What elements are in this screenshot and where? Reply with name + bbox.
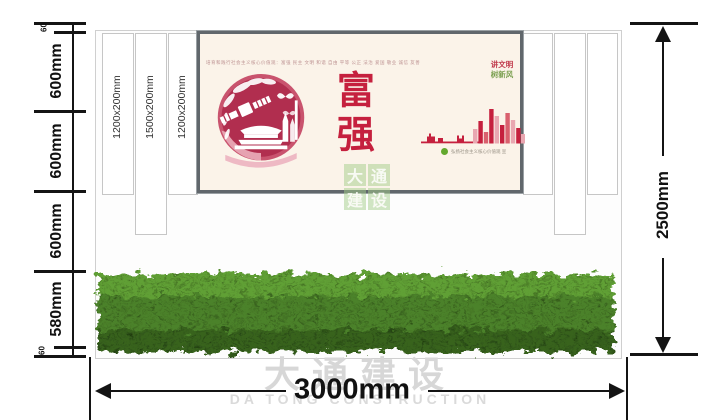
post-right-3 — [587, 33, 618, 195]
dim-2500: 2500mm — [653, 160, 673, 250]
arrow-up-icon — [655, 26, 671, 42]
dim-600-1: 600mm — [47, 31, 67, 111]
right-tick-top — [630, 22, 698, 25]
right-dim-line-lower — [662, 258, 664, 344]
bottom-dim-line-right — [428, 390, 612, 392]
core-values-tagline: 培育和践行社会主义核心价值观：富强 民主 文明 和谐 自由 平等 公正 法治 爱… — [206, 60, 420, 66]
dim-600-2: 600mm — [47, 111, 67, 191]
papercut-circle-illustration — [214, 72, 308, 172]
post-label-2: 1500x200mm — [143, 67, 157, 147]
right-dim-line-upper — [662, 38, 664, 156]
hedge-image — [86, 262, 626, 364]
bottom-dim-line-left — [106, 390, 286, 392]
arrow-right-icon — [609, 383, 625, 399]
post-label-1: 1200x200mm — [110, 67, 124, 147]
post-label-3: 1200x200mm — [175, 67, 189, 147]
dim-600-3: 600mm — [47, 191, 67, 271]
bottom-ext-left — [89, 357, 91, 420]
post-right-2 — [554, 33, 586, 235]
green-dot-icon — [441, 148, 448, 155]
arrow-left-icon — [95, 383, 111, 399]
arrow-down-icon — [655, 337, 671, 353]
city-skyline-graphic — [421, 106, 525, 148]
watermark-grid: 大 通 建 设 — [344, 164, 390, 210]
signage-elevation-drawing: 1200x200mm 1500x200mm 1200x200mm 培育和践行社会… — [0, 0, 720, 420]
dim-580: 580mm — [47, 269, 67, 349]
bottom-ext-right — [626, 357, 628, 420]
dim-60-bottom: 60 — [36, 339, 49, 363]
right-tick-bottom — [630, 353, 698, 356]
post-right-1 — [523, 33, 553, 195]
credit-line: 弘扬社会主义核心价值观 宣 — [441, 148, 506, 155]
dim-3000: 3000mm — [294, 374, 410, 407]
civility-slogan: 讲文明 树新风 — [488, 60, 516, 80]
